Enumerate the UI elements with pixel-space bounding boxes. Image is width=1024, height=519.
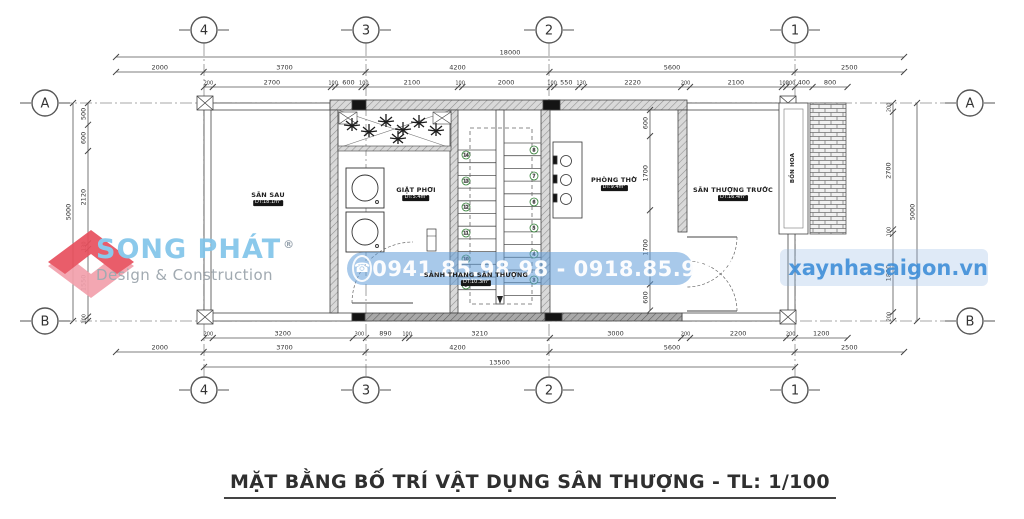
phone-icon: ☎ — [352, 255, 372, 282]
room-area-tag: DT:10.3m² — [461, 280, 491, 286]
svg-text:3700: 3700 — [276, 344, 293, 352]
svg-text:2500: 2500 — [841, 344, 858, 352]
room-area-tag: DT:18.1m² — [253, 200, 283, 206]
stair-step-number: 5 — [530, 224, 538, 232]
svg-text:2: 2 — [545, 384, 553, 399]
room-name: SÂN SAU — [251, 192, 285, 199]
grid-bubble-A: A — [945, 90, 995, 116]
svg-text:600: 600 — [80, 132, 88, 144]
planter-box — [338, 110, 451, 151]
svg-text:130: 130 — [576, 81, 586, 87]
grid-bubble-3: 3 — [341, 377, 391, 403]
room-label-2: SẢNH THANG SÂN THƯỢNGDT:10.3m² — [424, 272, 528, 286]
dim-chain-right-overall: 5000 — [909, 100, 921, 324]
dim-chain-bottom-detail: 20032003008901003210300020022002001200 — [201, 330, 851, 342]
room-label-0: SÂN SAUDT:18.1m² — [251, 192, 285, 206]
svg-text:4200: 4200 — [449, 64, 466, 72]
svg-text:13: 13 — [463, 179, 469, 184]
svg-text:5000: 5000 — [909, 204, 917, 221]
svg-text:890: 890 — [379, 330, 391, 338]
svg-text:3210: 3210 — [471, 330, 488, 338]
svg-text:5600: 5600 — [664, 344, 681, 352]
svg-text:5000: 5000 — [65, 204, 73, 221]
svg-text:2500: 2500 — [841, 64, 858, 72]
dim-chain-top-grid: 20003700420056002500 — [113, 64, 907, 76]
svg-text:200: 200 — [887, 103, 893, 113]
grid-bubble-2: 2 — [524, 17, 574, 43]
svg-text:6: 6 — [533, 200, 536, 205]
svg-text:13500: 13500 — [489, 359, 510, 367]
svg-text:200: 200 — [786, 81, 796, 87]
room-name: SẢNH THANG SÂN THƯỢNG — [424, 272, 528, 279]
room-name: BỒN HOA — [790, 153, 796, 183]
svg-text:A: A — [966, 97, 975, 112]
room-name: PHÒNG THỜ — [591, 177, 637, 184]
svg-text:2000: 2000 — [152, 64, 169, 72]
grid-bubble-A: A — [20, 90, 70, 116]
registered-mark: ® — [283, 238, 295, 251]
svg-text:11: 11 — [463, 231, 469, 236]
svg-text:3: 3 — [362, 384, 370, 399]
stair-step-number: 13 — [462, 177, 470, 185]
svg-text:200: 200 — [681, 81, 691, 87]
room-label-1: GIẶT PHƠIDT:5.4m² — [396, 187, 436, 201]
svg-text:A: A — [41, 97, 50, 112]
grid-bubble-1: 1 — [770, 377, 820, 403]
grid-bubble-4: 4 — [179, 17, 229, 43]
svg-text:550: 550 — [560, 79, 572, 87]
room-area-tag: DT:5.4m² — [403, 195, 430, 201]
svg-text:200: 200 — [204, 332, 214, 338]
room-name: GIẶT PHƠI — [396, 187, 436, 194]
svg-text:800: 800 — [824, 79, 836, 87]
dim-chain-bottom-overall: 13500 — [201, 359, 798, 371]
dim-chain-right-detail: 20027001001800200 — [885, 100, 897, 324]
svg-text:B: B — [41, 315, 50, 330]
logo-tagline: Design & Construction — [96, 266, 295, 284]
svg-text:2120: 2120 — [80, 189, 88, 206]
svg-text:3200: 3200 — [275, 330, 292, 338]
svg-text:3700: 3700 — [276, 64, 293, 72]
svg-text:7: 7 — [533, 174, 536, 179]
svg-text:200: 200 — [887, 312, 893, 322]
svg-text:2700: 2700 — [264, 79, 281, 87]
svg-text:2: 2 — [545, 24, 553, 39]
svg-text:3: 3 — [362, 24, 370, 39]
grid-bubble-B: B — [945, 308, 995, 334]
svg-text:2000: 2000 — [498, 79, 515, 87]
grid-bubble-1: 1 — [770, 17, 820, 43]
svg-text:4200: 4200 — [449, 344, 466, 352]
svg-text:5600: 5600 — [664, 64, 681, 72]
svg-text:4: 4 — [200, 24, 208, 39]
stair-step-number: 7 — [530, 172, 538, 180]
svg-text:8: 8 — [533, 148, 536, 153]
grid-bubble-4: 4 — [179, 377, 229, 403]
svg-text:2700: 2700 — [885, 162, 893, 179]
svg-text:2100: 2100 — [404, 79, 421, 87]
room-name: SÂN THƯỢNG TRƯỚC — [693, 187, 773, 194]
svg-text:B: B — [966, 315, 975, 330]
stair-step-number: 6 — [530, 198, 538, 206]
svg-text:300: 300 — [355, 332, 365, 338]
svg-text:2100: 2100 — [728, 79, 745, 87]
room-area-tag: DT:9.4m² — [601, 185, 628, 191]
svg-text:14: 14 — [463, 153, 469, 158]
svg-text:600: 600 — [642, 291, 650, 303]
svg-text:200: 200 — [681, 332, 691, 338]
stair-step-number: 14 — [462, 151, 470, 159]
svg-text:200: 200 — [204, 81, 214, 87]
svg-text:2200: 2200 — [730, 330, 747, 338]
svg-text:1: 1 — [791, 384, 799, 399]
dim-chain-top-overall: 18000 — [113, 49, 907, 61]
svg-text:5: 5 — [533, 226, 536, 231]
logo-name: SONG PHÁT® — [96, 234, 295, 265]
svg-text:600: 600 — [342, 79, 354, 87]
svg-text:400: 400 — [798, 79, 810, 87]
floor-plan-canvas: 14131211109876543 1800020003700420056002… — [0, 0, 1024, 519]
website-url: xaynhasaigon.vn — [788, 256, 988, 280]
svg-text:1200: 1200 — [813, 330, 830, 338]
altar-table — [553, 142, 582, 218]
svg-text:500: 500 — [80, 108, 88, 120]
svg-text:200: 200 — [786, 332, 796, 338]
svg-text:18000: 18000 — [500, 49, 521, 57]
stair-step-number: 8 — [530, 146, 538, 154]
svg-text:600: 600 — [642, 117, 650, 129]
svg-text:12: 12 — [463, 205, 469, 210]
stair-step-number: 11 — [462, 229, 470, 237]
stair-step-number: 12 — [462, 203, 470, 211]
room-label-4: SÂN THƯỢNG TRƯỚCDT:16.4m² — [693, 187, 773, 201]
grid-bubble-2: 2 — [524, 377, 574, 403]
svg-text:1700: 1700 — [642, 165, 650, 182]
dim-chain-bottom-grid: 20003700420056002500 — [113, 344, 907, 356]
grid-bubble-3: 3 — [341, 17, 391, 43]
room-area-tag: DT:16.4m² — [718, 195, 748, 201]
drawing-title: MẶT BẰNG BỐ TRÍ VẬT DỤNG SÂN THƯỢNG - TL… — [224, 471, 836, 499]
laundry-equipment — [346, 168, 436, 252]
svg-text:2000: 2000 — [152, 344, 169, 352]
svg-text:3000: 3000 — [607, 330, 624, 338]
room-label-5: BỒN HOA — [790, 153, 796, 183]
songphat-logo: SONG PHÁT® Design & Construction — [44, 226, 274, 304]
website-watermark: xaynhasaigon.vn — [780, 249, 988, 286]
svg-text:2220: 2220 — [624, 79, 641, 87]
svg-text:1: 1 — [791, 24, 799, 39]
grid-bubble-B: B — [20, 308, 70, 334]
svg-text:4: 4 — [200, 384, 208, 399]
room-label-3: PHÒNG THỜDT:9.4m² — [591, 177, 637, 191]
dim-chain-top-detail: 2002700100600100210010020001005501302220… — [201, 79, 851, 91]
